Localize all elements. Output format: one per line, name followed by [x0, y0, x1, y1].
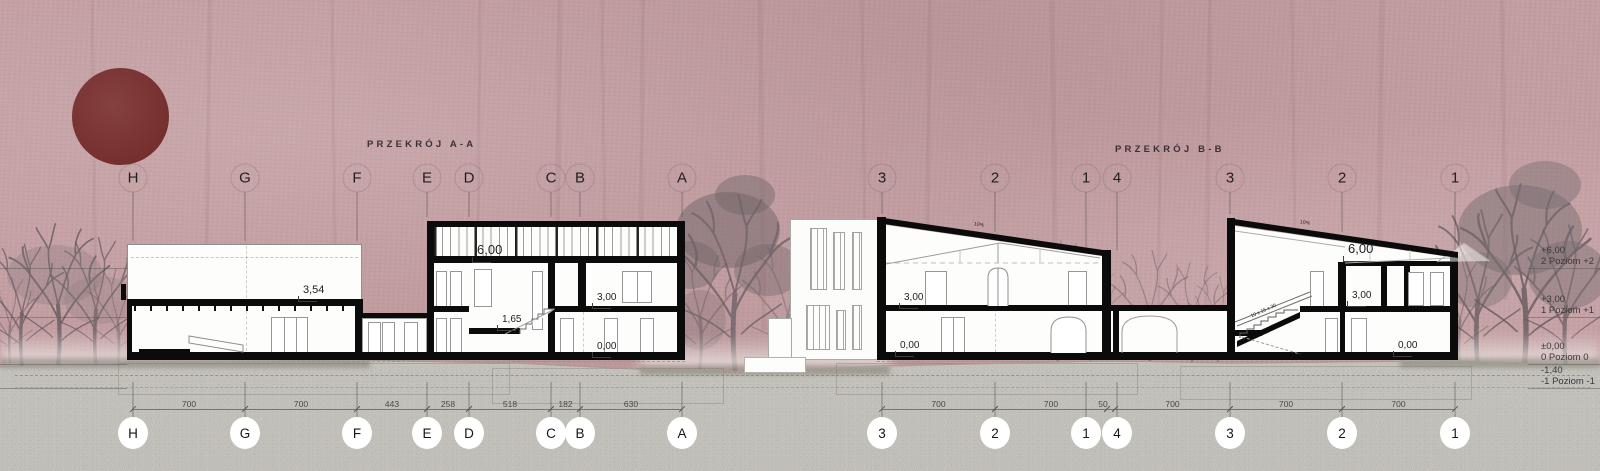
grid-label: 3	[878, 170, 886, 187]
level-value: -1,40	[1541, 365, 1595, 376]
main-upper-opening	[474, 269, 492, 307]
bldg-b-landing	[1235, 330, 1262, 336]
grid-leader	[1117, 382, 1118, 417]
elevation-window	[833, 232, 845, 290]
hall-joist-ticks	[134, 306, 355, 311]
level-line	[1528, 268, 1600, 269]
bldg-b-upper-window	[1430, 272, 1444, 306]
level-label: -1,40-1 Poziom -1	[1541, 365, 1595, 387]
main-roof-slab	[427, 256, 685, 263]
main-grid-dash	[583, 312, 584, 352]
dimension-value: 630	[624, 399, 638, 409]
grid-line	[882, 192, 883, 214]
bldg-a-upper-window	[1068, 271, 1087, 306]
grid-line	[1342, 192, 1343, 232]
connector-a-slab	[362, 352, 427, 360]
hall-floor-slab	[127, 352, 363, 360]
level-mark-tick	[592, 303, 611, 309]
bldg-b-upper-pier	[1381, 262, 1387, 306]
dimension-value: 700	[182, 399, 196, 409]
main-upper-door	[450, 271, 462, 307]
section-a-title: PRZEKRÓJ A-A	[367, 139, 476, 150]
level-mark-tick	[497, 325, 516, 331]
main-upper-door	[436, 271, 447, 307]
bldg-b-upper-window	[1408, 272, 1424, 306]
connector-b-body	[1111, 311, 1230, 353]
hall-grid-dash	[246, 246, 247, 298]
grid-line	[1117, 192, 1118, 250]
main-lower-door	[436, 318, 447, 353]
level-mark-tick	[298, 296, 317, 302]
connector-b-slab	[1111, 352, 1230, 360]
grid-label: B	[575, 170, 585, 187]
main-roof-clerestory	[434, 227, 677, 256]
main-right-wall	[677, 221, 685, 360]
slab-300-right	[555, 306, 677, 312]
hall-roof-dash	[131, 257, 358, 258]
elevation-window	[810, 228, 827, 290]
level-mark-tick	[1343, 256, 1362, 262]
level-mark: 0,00	[900, 340, 919, 351]
grid-bubble: H	[118, 417, 148, 449]
main-upper-window	[622, 271, 652, 303]
door-mullion	[284, 318, 285, 352]
bldg-b-left-wall	[1227, 218, 1235, 360]
hall-left-wall	[127, 299, 132, 360]
grid-line	[1455, 192, 1456, 250]
grid-label: F	[352, 170, 361, 187]
grid-label: 4	[1113, 170, 1121, 187]
foundation-outline	[1180, 366, 1472, 400]
grid-label: H	[128, 170, 139, 187]
grid-label: A	[677, 170, 687, 187]
dimension-line	[469, 409, 551, 410]
bldg-b-ground-door	[1325, 318, 1338, 353]
hall-roof-volume	[127, 244, 362, 300]
grid-bubble: B	[565, 417, 595, 449]
connector-a-door	[382, 322, 395, 353]
grid-bubble: A	[667, 417, 697, 449]
grid-line	[245, 192, 246, 241]
terrain-accent-b	[877, 361, 1458, 362]
main-lower-door	[450, 318, 462, 353]
level-mark-tick	[472, 257, 491, 263]
level-mark: 3,00	[597, 292, 616, 303]
grid-line	[427, 192, 428, 217]
bldg-b-mid-wall-lower	[1340, 311, 1345, 353]
level-line	[0, 388, 127, 389]
foundation-outline	[492, 368, 724, 404]
bldg-a-ground-door	[941, 317, 965, 353]
level-label: +6,002 Poziom +2	[1541, 245, 1594, 267]
dimension-value: 518	[503, 399, 517, 409]
grid-leader	[357, 382, 358, 417]
window-mullion	[637, 272, 638, 302]
door-mullion	[953, 318, 954, 352]
architectural-section-board: PRZEKRÓJ A-A PRZEKRÓJ B-B HHGGFFEEDDCCBB…	[0, 0, 1600, 471]
dimension-value: 700	[1391, 399, 1405, 409]
elevation-window	[852, 305, 862, 350]
level-mark-tick	[1393, 351, 1412, 357]
grid-line	[995, 192, 996, 232]
level-mark-tick	[899, 303, 918, 309]
level-value: +6,00	[1541, 245, 1594, 256]
dimension-value: 700	[1279, 399, 1293, 409]
dimension-value: 258	[441, 399, 455, 409]
grid-leader	[1342, 382, 1343, 417]
bldg-b-slab-300	[1300, 306, 1450, 312]
hall-left-edge-detail	[121, 284, 126, 300]
dimension-value: 700	[931, 399, 945, 409]
grid-label: 3	[1226, 170, 1234, 187]
dimension-value: 700	[1044, 399, 1058, 409]
grid-leader	[551, 382, 552, 417]
level-label: +3,001 Poziom +1	[1541, 294, 1594, 316]
slab-300-left	[434, 306, 469, 312]
level-value: +3,00	[1541, 294, 1594, 305]
main-lower-door	[640, 318, 654, 353]
dimension-line	[995, 409, 1107, 410]
hall-grid-dash-low	[246, 311, 247, 351]
bldg-b-upper-door	[1310, 271, 1324, 308]
level-mark: 10%	[1300, 219, 1311, 226]
level-value: ±0,00	[1541, 341, 1589, 352]
grid-label: 1	[1451, 170, 1459, 187]
bldg-a-right-wall	[1102, 250, 1111, 360]
level-mark: 3,54	[303, 284, 324, 296]
level-name: 0 Poziom 0	[1541, 352, 1589, 363]
grid-bubble: 3	[1215, 417, 1245, 449]
grid-leader	[133, 382, 134, 417]
dimension-value: 50	[1098, 399, 1107, 409]
main-floor-slab	[427, 352, 685, 360]
grid-leader	[682, 382, 683, 417]
bldg-b-floor-slab	[1227, 352, 1458, 360]
level-name: 2 Poziom +2	[1541, 256, 1594, 267]
sun-circle	[72, 68, 169, 165]
grid-leader	[1230, 382, 1231, 417]
grid-line	[1086, 192, 1087, 247]
level-mark: 1,65	[502, 314, 521, 325]
grid-line	[1230, 192, 1231, 214]
hall-beam	[127, 299, 363, 306]
grid-leader	[1086, 382, 1087, 417]
elevation-window	[836, 310, 846, 350]
dimension-value: 700	[294, 399, 308, 409]
dimension-line	[1115, 409, 1230, 410]
grid-bubble: 4	[1102, 417, 1132, 449]
grid-line	[551, 192, 552, 217]
level-mark: 6,00	[477, 242, 502, 257]
dimension-line	[1342, 409, 1455, 410]
level-mark: 10%	[974, 221, 985, 228]
bldg-a-grid-dash	[995, 268, 996, 352]
grid-leader	[995, 382, 996, 417]
grid-bubble: E	[412, 417, 442, 449]
grid-bubble: 2	[980, 417, 1010, 449]
level-mark: 0,00	[1398, 340, 1417, 351]
main-wall-c	[548, 263, 555, 334]
grid-label: 1	[1082, 170, 1090, 187]
elevation-annex	[768, 318, 792, 360]
door-mullion	[296, 318, 297, 352]
dimension-line	[1230, 409, 1342, 410]
dimension-line	[427, 409, 469, 410]
bldg-a-left-wall	[877, 217, 886, 360]
section-b-title: PRZEKRÓJ B-B	[1115, 144, 1225, 155]
dimension-line	[580, 409, 682, 410]
elevation-steps	[744, 357, 806, 373]
grid-leader	[245, 382, 246, 417]
level-mark-tick	[592, 352, 611, 358]
elevation-window	[806, 305, 830, 350]
main-wall-b	[578, 263, 586, 307]
grid-leader	[882, 382, 883, 417]
connector-a-door	[368, 322, 381, 353]
grid-leader	[469, 382, 470, 417]
grid-leader	[1455, 382, 1456, 417]
grid-leader	[580, 382, 581, 417]
level-line	[0, 364, 127, 365]
level-name: 1 Poziom +1	[1541, 305, 1594, 316]
wall-under-landing	[548, 334, 555, 353]
grid-label: C	[546, 170, 557, 187]
grid-bubble: 1	[1071, 417, 1101, 449]
dimension-line	[245, 409, 357, 410]
level-line	[1528, 317, 1600, 318]
level-mark: 3,00	[1352, 290, 1371, 301]
grid-label: G	[239, 170, 251, 187]
level-label: ±0,000 Poziom 0	[1541, 341, 1589, 363]
grid-bubble: D	[454, 417, 484, 449]
grid-label: 2	[1338, 170, 1346, 187]
grid-bubble: 3	[867, 417, 897, 449]
level-mark: 6,00	[1348, 241, 1373, 256]
bldg-b-mid-wall-upper	[1338, 262, 1346, 310]
main-lower-door	[560, 318, 574, 353]
grid-line	[133, 192, 134, 241]
level-mark-tick	[1347, 301, 1366, 307]
foundation-outline	[118, 363, 510, 395]
level-name: -1 Poziom -1	[1541, 376, 1595, 387]
grid-line	[682, 192, 683, 217]
level-line	[0, 268, 127, 269]
elevation-window	[852, 232, 862, 290]
level-mark: 10 x 15 x 30	[1250, 303, 1277, 320]
level-mark: 0,00	[597, 341, 616, 352]
stair-core-door	[532, 271, 543, 330]
level-mark: 3,00	[904, 292, 923, 303]
hall-door	[271, 317, 308, 353]
grid-leader	[427, 382, 428, 417]
dimension-line	[551, 409, 580, 410]
grid-line	[357, 192, 358, 241]
dimension-line	[357, 409, 427, 410]
terrain-accent-a	[127, 361, 685, 362]
grid-label: 2	[991, 170, 999, 187]
grid-line	[580, 192, 581, 217]
grid-bubble: G	[230, 417, 260, 449]
level-mark-tick	[895, 351, 914, 357]
bldg-b-right-wall	[1450, 256, 1458, 360]
main-left-wall	[427, 221, 434, 360]
grid-bubble: 2	[1327, 417, 1357, 449]
level-line	[0, 317, 127, 318]
dimension-line	[882, 409, 995, 410]
bldg-a-upper-window	[925, 271, 947, 306]
bldg-b-ground-door	[1351, 318, 1367, 353]
connector-a-door	[404, 322, 418, 353]
grid-bubble: 1	[1440, 417, 1470, 449]
grid-label: D	[464, 170, 475, 187]
grid-line	[469, 192, 470, 217]
grid-bubble: F	[342, 417, 372, 449]
dimension-value: 700	[1165, 399, 1179, 409]
level-line	[1528, 388, 1600, 389]
hall-interior	[132, 306, 355, 353]
grid-label: E	[422, 170, 432, 187]
dimension-value: 443	[385, 399, 399, 409]
dimension-line	[133, 409, 245, 410]
dimension-value: 182	[558, 399, 572, 409]
grid-bubble: C	[536, 417, 566, 449]
